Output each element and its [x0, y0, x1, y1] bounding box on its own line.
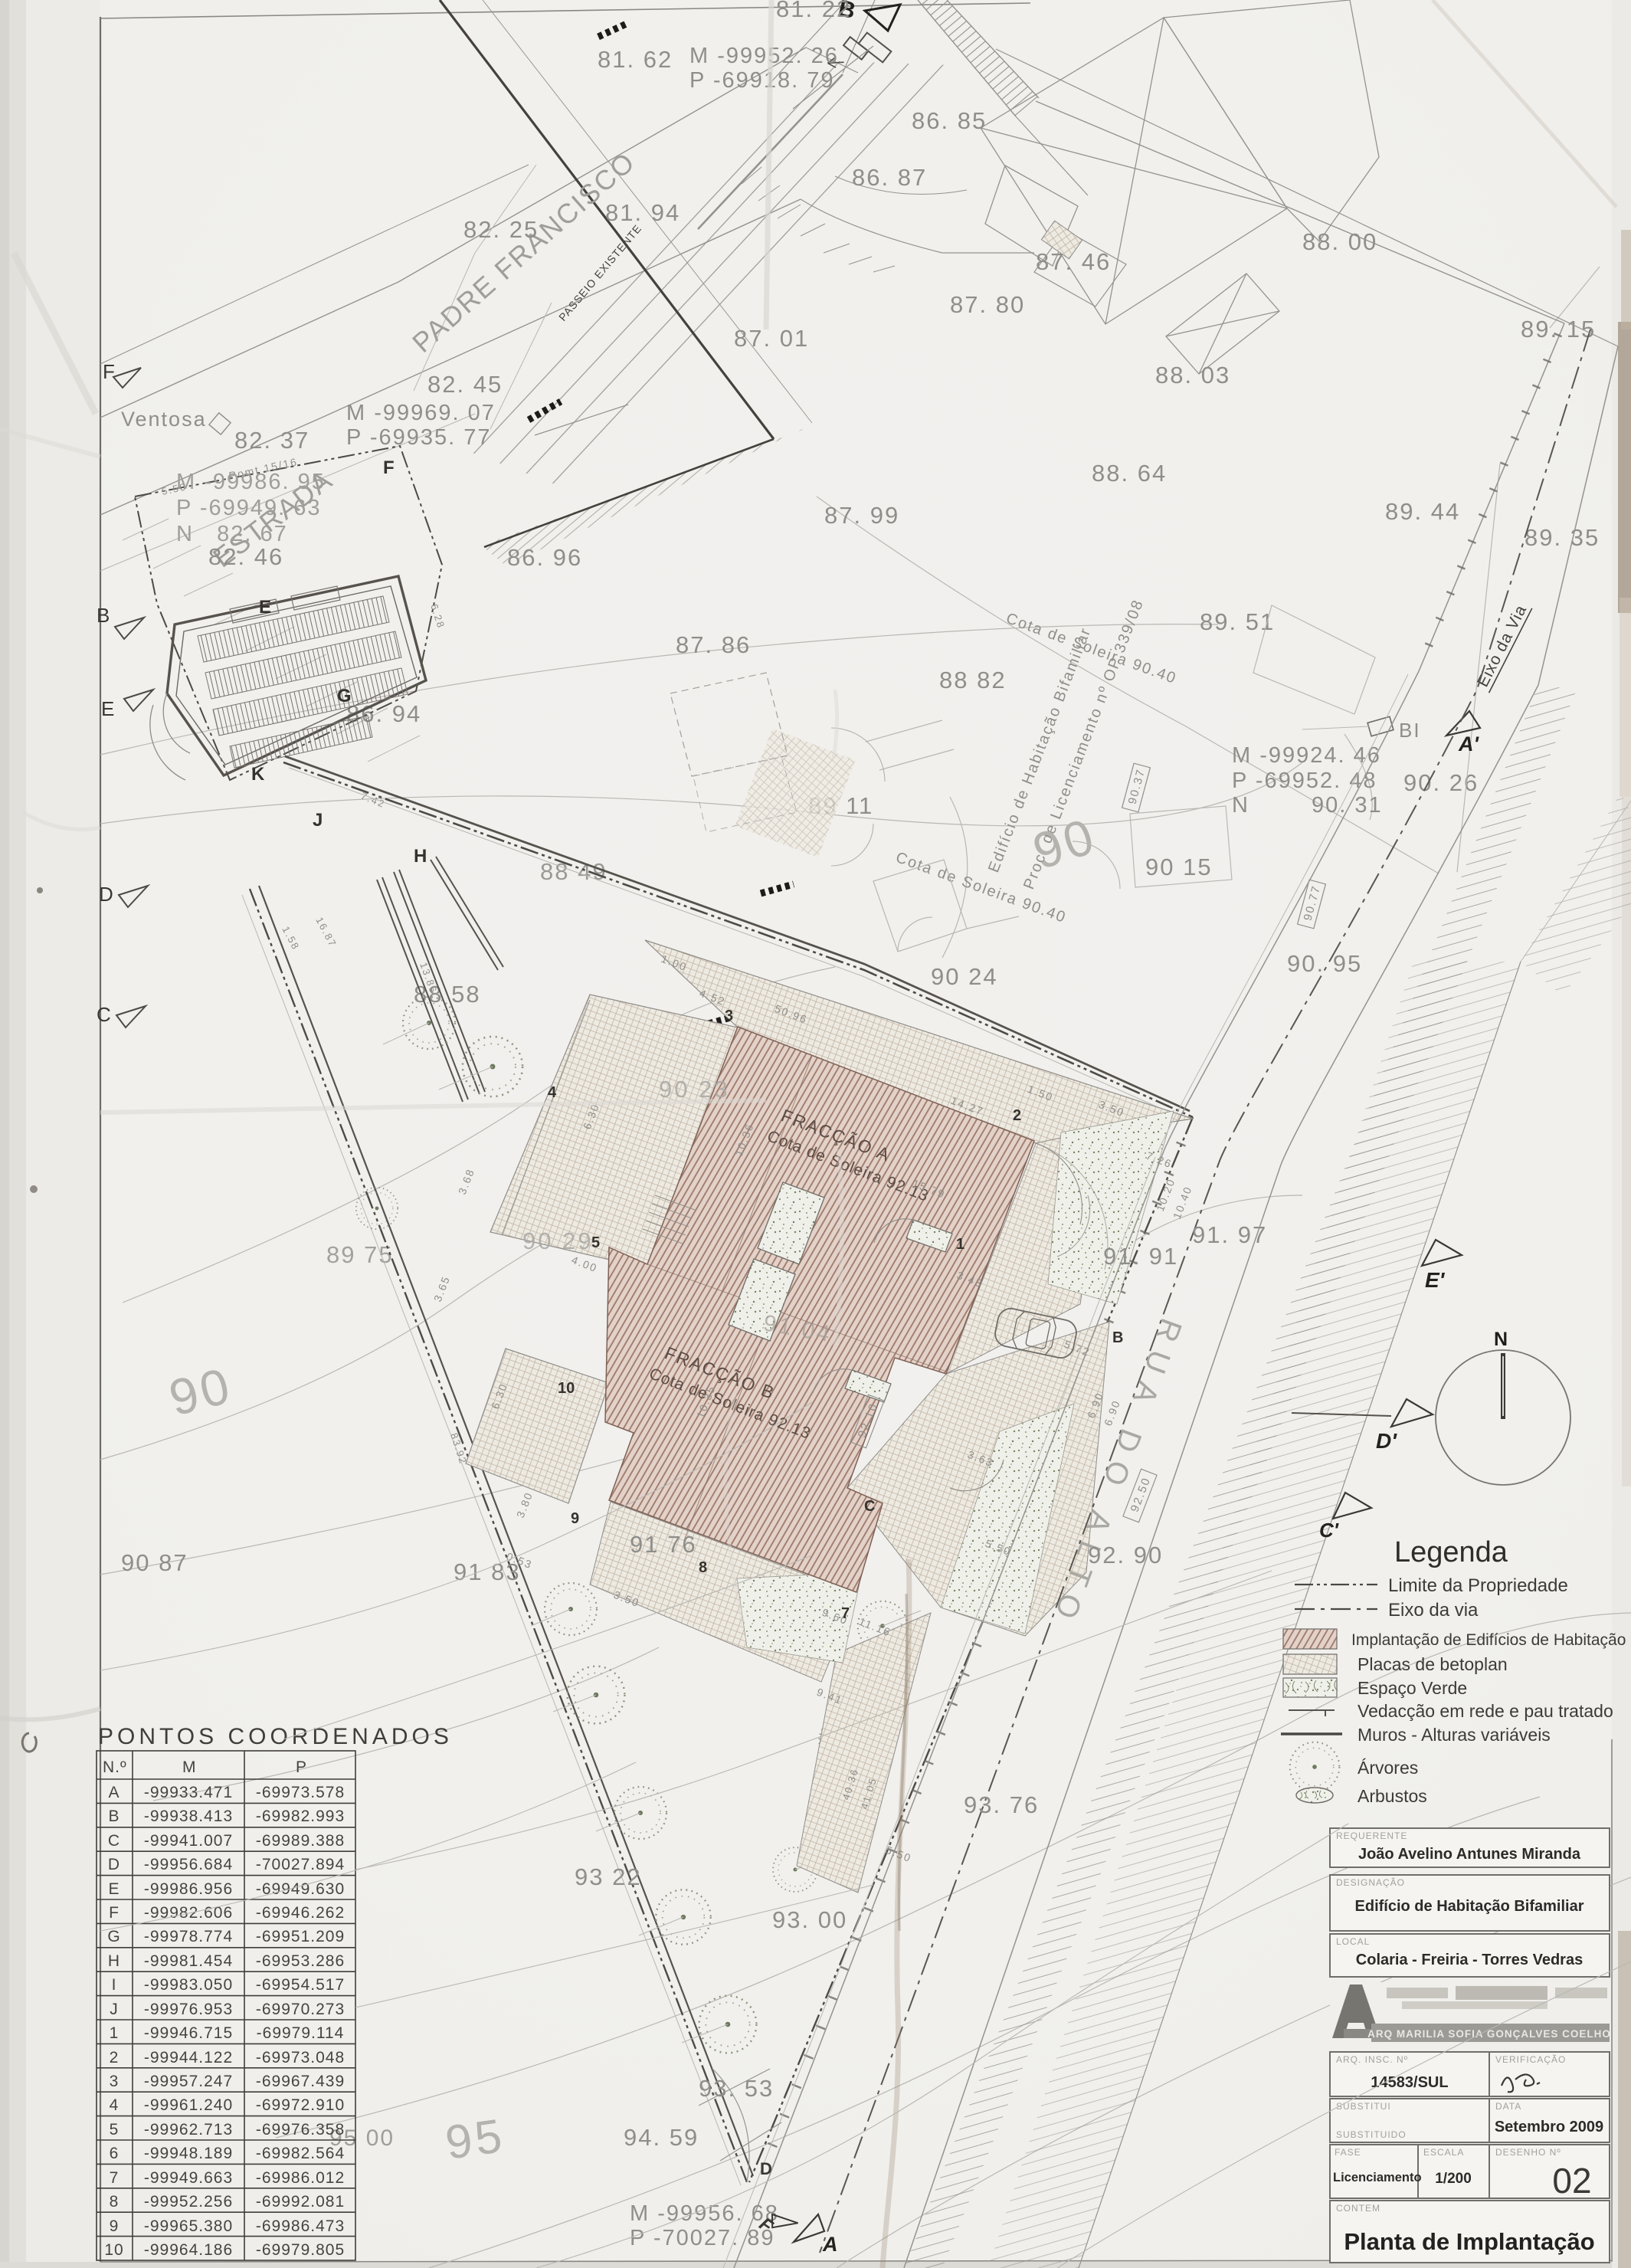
svg-text:90 23: 90 23 — [659, 1076, 730, 1103]
svg-text:-69946.262: -69946.262 — [256, 1904, 345, 1922]
svg-text:D: D — [108, 1856, 120, 1873]
svg-text:P -69949. 63: P -69949. 63 — [176, 496, 322, 520]
svg-text:DESENHO Nº: DESENHO Nº — [1495, 2147, 1561, 2158]
svg-text:1: 1 — [956, 1236, 965, 1253]
svg-text:Placas de betoplan: Placas de betoplan — [1358, 1654, 1508, 1674]
svg-text:C: C — [97, 1003, 111, 1026]
svg-text:9: 9 — [110, 2217, 120, 2235]
svg-text:5: 5 — [591, 1234, 600, 1251]
svg-text:G: G — [107, 1928, 120, 1945]
svg-text:E': E' — [1425, 1268, 1446, 1292]
svg-text:88 82: 88 82 — [939, 667, 1007, 693]
svg-text:B: B — [108, 1808, 120, 1825]
svg-text:87. 99: 87. 99 — [824, 502, 899, 529]
svg-text:Edifício de Habitação Bifamili: Edifício de Habitação Bifamiliar — [1355, 1898, 1584, 1915]
svg-text:87. 01: 87. 01 — [734, 325, 809, 352]
svg-text:ARQ. INSC. Nº: ARQ. INSC. Nº — [1336, 2054, 1408, 2065]
svg-text:-99946.715: -99946.715 — [144, 2024, 233, 2042]
svg-text:-99978.774: -99978.774 — [144, 1928, 233, 1945]
svg-text:8: 8 — [110, 2193, 120, 2211]
svg-text:Muros - Alturas variáveis: Muros - Alturas variáveis — [1358, 1725, 1551, 1745]
svg-text:90 24: 90 24 — [931, 963, 998, 990]
svg-text:F: F — [383, 457, 395, 478]
svg-text:-69979.805: -69979.805 — [256, 2241, 345, 2259]
svg-text:94. 59: 94. 59 — [624, 2124, 699, 2151]
svg-text:88. 03: 88. 03 — [1155, 362, 1230, 388]
svg-text:M -99924. 46: M -99924. 46 — [1232, 743, 1381, 768]
svg-text:91 83: 91 83 — [454, 1558, 521, 1585]
svg-text:-69951.209: -69951.209 — [256, 1928, 345, 1945]
svg-text:D': D' — [1376, 1429, 1397, 1453]
svg-text:-99957.247: -99957.247 — [144, 2073, 233, 2090]
svg-text:E: E — [101, 697, 114, 720]
svg-text:Setembro 2009: Setembro 2009 — [1495, 2119, 1603, 2135]
svg-text:95: 95 — [442, 2109, 508, 2170]
svg-text:Vedacção em rede e pau tratado: Vedacção em rede e pau tratado — [1358, 1701, 1613, 1721]
svg-text:6: 6 — [110, 2145, 120, 2162]
svg-text:-99976.953: -99976.953 — [144, 2001, 233, 2018]
svg-text:E: E — [259, 597, 271, 618]
svg-text:A: A — [822, 2233, 838, 2256]
svg-text:82. 46: 82. 46 — [208, 543, 283, 570]
svg-text:86. 87: 86. 87 — [852, 164, 927, 191]
svg-text:N: N — [1232, 793, 1249, 818]
svg-text:89. 35: 89. 35 — [1525, 524, 1600, 551]
svg-text:H: H — [108, 1952, 120, 1970]
svg-text:-69953.286: -69953.286 — [256, 1952, 345, 1970]
svg-text:87. 80: 87. 80 — [950, 291, 1025, 318]
svg-text:-99983.050: -99983.050 — [144, 1976, 233, 1994]
svg-text:Ventosa: Ventosa — [121, 408, 207, 431]
svg-text:-69954.517: -69954.517 — [256, 1976, 345, 1994]
svg-text:-99962.713: -99962.713 — [144, 2121, 233, 2139]
svg-text:-99986.956: -99986.956 — [144, 1880, 233, 1898]
svg-text:91. 97: 91. 97 — [1192, 1221, 1267, 1248]
svg-text:H: H — [414, 846, 427, 867]
svg-text:-99981.454: -99981.454 — [144, 1952, 233, 1970]
svg-text:Licenciamento: Licenciamento — [1333, 2171, 1422, 2184]
svg-text:81. 22: 81. 22 — [776, 0, 851, 22]
svg-text:-99944.122: -99944.122 — [144, 2049, 233, 2066]
svg-text:F: F — [103, 360, 115, 383]
svg-text:N: N — [1494, 1329, 1508, 1350]
svg-text:M -99952. 26: M -99952. 26 — [689, 44, 839, 68]
svg-text:-69973.048: -69973.048 — [256, 2049, 345, 2066]
svg-text:C': C' — [1319, 1519, 1339, 1542]
svg-text:92. 90: 92. 90 — [1088, 1542, 1163, 1568]
svg-text:-99949.663: -99949.663 — [144, 2169, 233, 2187]
svg-text:C: C — [108, 1832, 120, 1850]
svg-text:02: 02 — [1552, 2161, 1591, 2201]
svg-text:SUBSTITUI: SUBSTITUI — [1336, 2101, 1391, 2112]
svg-text:C: C — [864, 1498, 875, 1515]
svg-text:-69986.012: -69986.012 — [256, 2169, 345, 2187]
svg-text:Espaço Verde: Espaço Verde — [1358, 1678, 1467, 1698]
svg-text:Limite da Propriedade: Limite da Propriedade — [1388, 1575, 1568, 1596]
svg-text:-69989.388: -69989.388 — [256, 1832, 345, 1850]
svg-text:F: F — [109, 1904, 120, 1922]
svg-text:-69979.114: -69979.114 — [257, 2024, 345, 2042]
svg-text:SUBSTITUIDO: SUBSTITUIDO — [1336, 2129, 1407, 2140]
svg-text:CONTEM: CONTEM — [1336, 2203, 1380, 2214]
svg-text:P -69918. 79: P -69918. 79 — [689, 68, 835, 93]
svg-text:4: 4 — [110, 2096, 120, 2114]
svg-text:2: 2 — [110, 2049, 120, 2066]
svg-text:9: 9 — [571, 1510, 579, 1527]
svg-text:93. 53: 93. 53 — [699, 2075, 774, 2102]
svg-text:P -69952. 48: P -69952. 48 — [1232, 769, 1377, 793]
svg-text:M -99986. 95: M -99986. 95 — [176, 470, 326, 494]
svg-text:I: I — [112, 1976, 117, 1994]
svg-text:-69970.273: -69970.273 — [256, 2001, 345, 2018]
svg-text:D: D — [760, 2159, 772, 2178]
svg-text:N.º: N.º — [103, 1758, 127, 1776]
svg-text:Implantação de Edifícios de Ha: Implantação de Edifícios de Habitação — [1351, 1631, 1626, 1649]
svg-text:-99961.240: -99961.240 — [144, 2096, 233, 2114]
svg-text:93 22: 93 22 — [575, 1863, 642, 1890]
svg-text:B: B — [1112, 1329, 1123, 1346]
svg-text:Colaria - Freiria - Torres Ved: Colaria - Freiria - Torres Vedras — [1356, 1952, 1583, 1968]
svg-text:P -69935. 77: P -69935. 77 — [346, 425, 492, 450]
svg-text:-99938.413: -99938.413 — [144, 1808, 233, 1825]
svg-text:-99964.186: -99964.186 — [144, 2241, 233, 2259]
svg-text:91 76: 91 76 — [630, 1531, 697, 1558]
svg-text:89. 44: 89. 44 — [1385, 498, 1460, 525]
svg-text:87. 86: 87. 86 — [676, 631, 751, 658]
svg-text:90 15: 90 15 — [1145, 854, 1213, 880]
svg-text:86. 96: 86. 96 — [507, 544, 582, 571]
svg-text:-69973.578: -69973.578 — [256, 1784, 345, 1801]
svg-text:93. 00: 93. 00 — [772, 1906, 847, 1933]
svg-text:1: 1 — [110, 2024, 120, 2042]
svg-text:João Avelino Antunes Miranda: João Avelino Antunes Miranda — [1358, 1846, 1581, 1863]
svg-text:Arbustos: Arbustos — [1358, 1786, 1427, 1806]
svg-text:DESIGNAÇÃO: DESIGNAÇÃO — [1336, 1877, 1405, 1888]
svg-text:Eixo da via: Eixo da via — [1388, 1600, 1479, 1621]
svg-text:90 87: 90 87 — [121, 1549, 188, 1576]
svg-text:93. 76: 93. 76 — [964, 1791, 1039, 1818]
svg-text:-99948.189: -99948.189 — [144, 2145, 233, 2162]
svg-text:7: 7 — [841, 1605, 850, 1622]
svg-text:88. 64: 88. 64 — [1092, 460, 1167, 487]
svg-text:J: J — [313, 810, 323, 831]
svg-text:10: 10 — [104, 2241, 123, 2259]
svg-text:M: M — [182, 1758, 197, 1776]
svg-text:M -99956. 68: M -99956. 68 — [630, 2201, 779, 2226]
svg-text:88. 00: 88. 00 — [1302, 228, 1377, 255]
svg-text:89. 51: 89. 51 — [1200, 608, 1275, 635]
svg-text:5: 5 — [110, 2121, 120, 2139]
svg-text:-70027.894: -70027.894 — [256, 1856, 345, 1873]
svg-text:B: B — [97, 604, 110, 627]
svg-text:DATA: DATA — [1495, 2101, 1521, 2112]
svg-text:-69986.473: -69986.473 — [256, 2217, 345, 2235]
svg-text:K: K — [251, 764, 265, 785]
svg-text:1/200: 1/200 — [1435, 2171, 1472, 2187]
svg-text:REQUERENTE: REQUERENTE — [1336, 1830, 1407, 1841]
svg-text:82. 45: 82. 45 — [427, 371, 503, 398]
svg-text:7: 7 — [110, 2169, 120, 2187]
svg-text:M -99969. 07: M -99969. 07 — [346, 401, 496, 425]
svg-text:LOCAL: LOCAL — [1336, 1936, 1370, 1947]
svg-text:A': A' — [1458, 733, 1479, 755]
svg-text:81. 62: 81. 62 — [598, 46, 673, 73]
svg-text:-69992.081: -69992.081 — [256, 2193, 345, 2211]
svg-text:91. 91: 91. 91 — [1103, 1243, 1178, 1270]
svg-text:82. 37: 82. 37 — [234, 427, 309, 454]
svg-text:ESCALA: ESCALA — [1423, 2147, 1464, 2158]
svg-text:-99965.380: -99965.380 — [144, 2217, 233, 2235]
svg-text:-99956.684: -99956.684 — [144, 1856, 233, 1873]
svg-text:E: E — [108, 1880, 120, 1898]
svg-text:4: 4 — [548, 1084, 557, 1101]
svg-text:90 29: 90 29 — [522, 1227, 594, 1254]
svg-text:FASE: FASE — [1335, 2147, 1361, 2158]
svg-text:A: A — [108, 1784, 120, 1801]
svg-text:90. 31: 90. 31 — [1312, 793, 1383, 818]
svg-text:G: G — [337, 686, 352, 706]
svg-text:-69949.630: -69949.630 — [256, 1880, 345, 1898]
svg-text:D: D — [99, 883, 113, 906]
svg-text:VERIFICAÇÃO: VERIFICAÇÃO — [1495, 2054, 1566, 2065]
svg-text:N 82. 67: N 82. 67 — [176, 522, 288, 546]
svg-text:BI: BI — [1399, 719, 1421, 742]
svg-text:-69972.910: -69972.910 — [256, 2096, 345, 2114]
svg-text:-99933.471: -99933.471 — [144, 1784, 233, 1801]
svg-text:PONTOS COORDENADOS: PONTOS COORDENADOS — [98, 1724, 453, 1749]
svg-text:3: 3 — [725, 1008, 733, 1024]
svg-text:J: J — [110, 2001, 119, 2018]
svg-text:10: 10 — [558, 1380, 575, 1397]
svg-text:90. 95: 90. 95 — [1287, 950, 1362, 977]
svg-text:86. 85: 86. 85 — [912, 107, 987, 134]
svg-text:Legenda: Legenda — [1394, 1536, 1508, 1568]
svg-text:-69967.439: -69967.439 — [256, 2073, 345, 2090]
svg-text:Planta de Implantação: Planta de Implantação — [1344, 2228, 1594, 2255]
svg-text:2: 2 — [1013, 1107, 1021, 1124]
svg-text:-69982.993: -69982.993 — [256, 1808, 345, 1825]
svg-text:8: 8 — [699, 1559, 707, 1576]
svg-text:3: 3 — [110, 2073, 120, 2090]
svg-text:-99952.256: -99952.256 — [144, 2193, 233, 2211]
svg-text:-69976.358: -69976.358 — [256, 2121, 345, 2139]
svg-text:-99941.007: -99941.007 — [144, 1832, 233, 1850]
svg-text:P: P — [296, 1758, 307, 1776]
svg-text:Árvores: Árvores — [1358, 1758, 1418, 1778]
svg-text:14583/SUL: 14583/SUL — [1371, 2074, 1448, 2091]
svg-text:81. 94: 81. 94 — [605, 199, 680, 226]
svg-text:89 75: 89 75 — [326, 1241, 394, 1268]
svg-text:-69982.564: -69982.564 — [256, 2145, 345, 2162]
svg-text:82. 25: 82. 25 — [463, 216, 539, 243]
